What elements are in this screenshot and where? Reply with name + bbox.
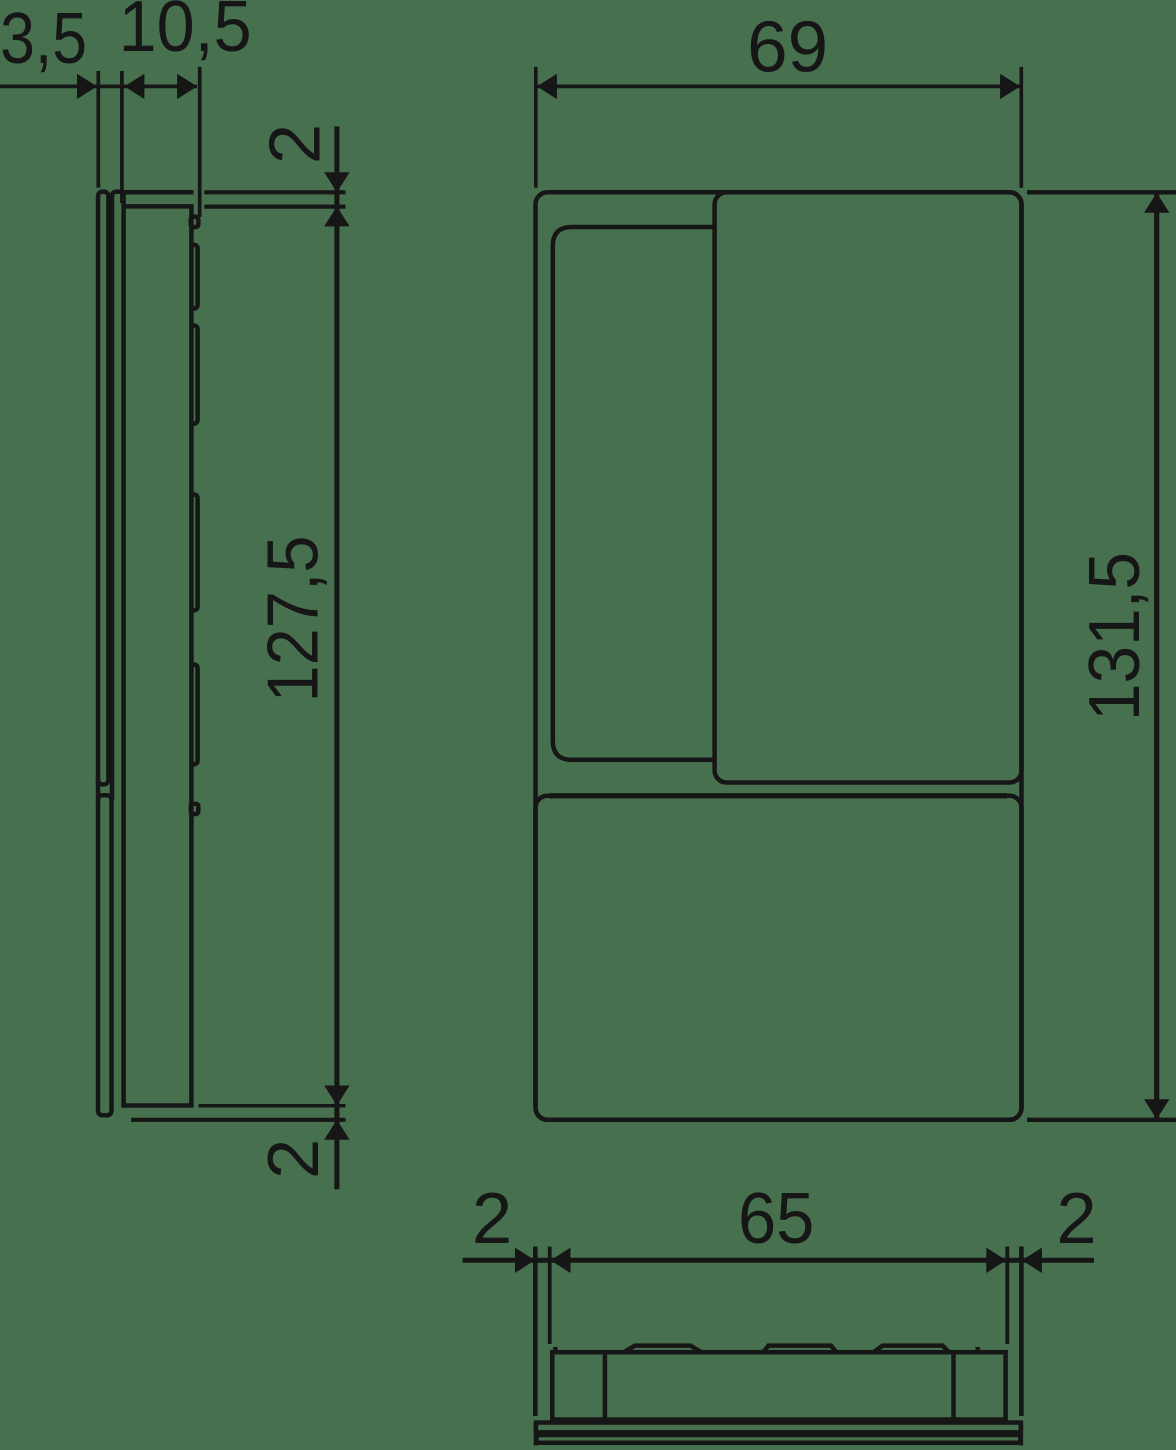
svg-text:2: 2 xyxy=(472,1178,512,1259)
svg-text:2: 2 xyxy=(255,124,336,164)
svg-text:65: 65 xyxy=(738,1178,815,1259)
svg-text:3,5: 3,5 xyxy=(0,0,87,79)
svg-text:127,5: 127,5 xyxy=(253,536,334,703)
svg-text:10,5: 10,5 xyxy=(119,0,252,67)
svg-text:2: 2 xyxy=(253,1139,334,1179)
svg-text:69: 69 xyxy=(747,6,828,87)
svg-text:2: 2 xyxy=(1056,1178,1096,1259)
svg-text:131,5: 131,5 xyxy=(1074,552,1155,721)
